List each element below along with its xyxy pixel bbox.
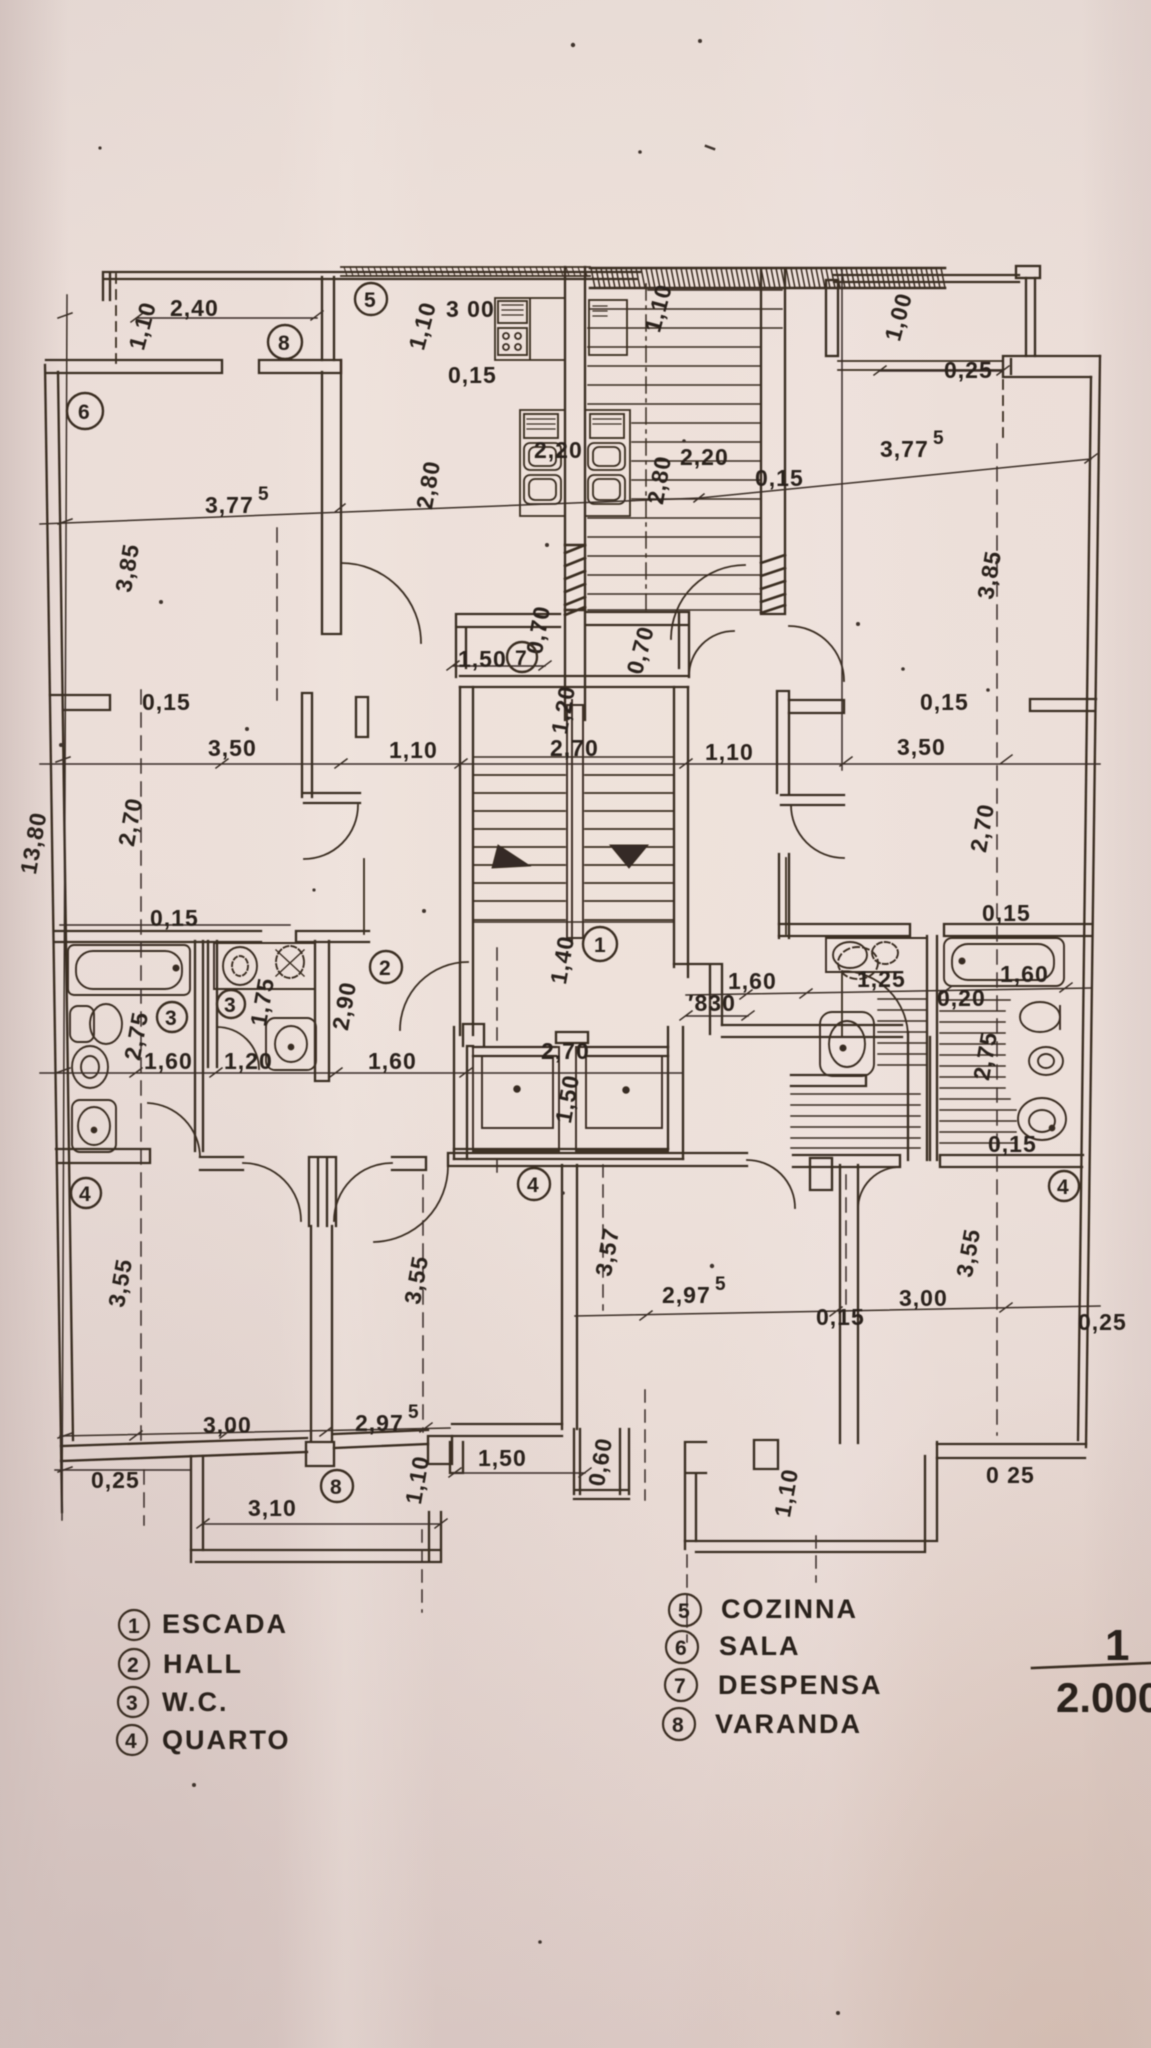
svg-text:0,15: 0,15	[755, 465, 804, 491]
svg-text:1,60: 1,60	[144, 1048, 193, 1074]
svg-text:HALL: HALL	[163, 1649, 243, 1679]
svg-text:0,15: 0,15	[982, 900, 1031, 926]
svg-text:0,25: 0,25	[944, 357, 993, 383]
svg-text:4: 4	[1057, 1176, 1069, 1199]
svg-text:2,20: 2,20	[534, 437, 583, 463]
svg-text:3: 3	[126, 1692, 138, 1715]
svg-text:4: 4	[125, 1730, 137, 1753]
svg-text:2,70: 2,70	[541, 1038, 590, 1064]
svg-text:0,15: 0,15	[920, 689, 969, 715]
svg-text:7: 7	[515, 647, 527, 670]
svg-text:2,20: 2,20	[680, 444, 729, 470]
svg-text:2,97: 2,97	[662, 1282, 711, 1308]
svg-text:1: 1	[128, 1615, 140, 1638]
svg-text:5: 5	[715, 1274, 726, 1295]
svg-text:0,15: 0,15	[816, 1304, 865, 1330]
svg-text:5: 5	[364, 289, 376, 312]
svg-text:W.C.: W.C.	[162, 1687, 229, 1717]
svg-text:5: 5	[258, 484, 269, 505]
svg-text:1,60: 1,60	[728, 968, 777, 994]
svg-text:1: 1	[594, 934, 606, 957]
svg-text:8: 8	[330, 1476, 342, 1499]
svg-text:7: 7	[674, 1675, 686, 1698]
svg-text:1,50: 1,50	[478, 1445, 527, 1471]
svg-text:0,15: 0,15	[448, 362, 497, 388]
svg-text:1: 1	[1105, 1621, 1129, 1670]
svg-text:1,10: 1,10	[389, 737, 438, 763]
svg-text:1,10: 1,10	[705, 739, 754, 765]
svg-text:3: 3	[224, 994, 236, 1017]
svg-text:0,15: 0,15	[988, 1131, 1037, 1157]
svg-text:2.000: 2.000	[1056, 1674, 1151, 1721]
svg-text:1,60: 1,60	[368, 1048, 417, 1074]
svg-text:4: 4	[527, 1174, 539, 1197]
svg-text:3,77: 3,77	[880, 436, 929, 462]
svg-text:5: 5	[678, 1600, 690, 1623]
svg-text:3,50: 3,50	[897, 734, 946, 760]
svg-text:3,50: 3,50	[208, 735, 257, 761]
svg-text:QUARTO: QUARTO	[162, 1725, 291, 1755]
svg-text:4: 4	[79, 1183, 91, 1206]
svg-text:1,20: 1,20	[224, 1048, 273, 1074]
svg-text:1,60: 1,60	[1000, 961, 1049, 987]
svg-text:0,15: 0,15	[142, 689, 191, 715]
svg-text:5: 5	[933, 428, 944, 449]
svg-text:ESCADA: ESCADA	[162, 1609, 288, 1639]
svg-text:3 00: 3 00	[446, 296, 495, 322]
svg-text:SALA: SALA	[719, 1631, 801, 1661]
svg-text:VARANDA: VARANDA	[715, 1709, 862, 1739]
svg-text:3,77: 3,77	[205, 492, 254, 518]
svg-text:2,40: 2,40	[170, 295, 219, 321]
svg-text:2,70: 2,70	[550, 735, 599, 761]
svg-text:3: 3	[165, 1007, 177, 1030]
svg-text:0,25: 0,25	[91, 1467, 140, 1493]
svg-text:2,97: 2,97	[355, 1410, 404, 1436]
svg-text:3,00: 3,00	[203, 1412, 252, 1438]
svg-text:6: 6	[675, 1637, 687, 1660]
svg-text:5: 5	[408, 1402, 419, 1423]
svg-text:6: 6	[78, 401, 90, 424]
svg-text:1,50: 1,50	[458, 646, 507, 672]
svg-text:0,15: 0,15	[150, 905, 199, 931]
svg-text:8: 8	[278, 332, 290, 355]
svg-text:0 25: 0 25	[986, 1462, 1035, 1488]
svg-text:3,00: 3,00	[899, 1285, 948, 1311]
svg-text:DESPENSA: DESPENSA	[718, 1670, 883, 1700]
svg-text:0,25: 0,25	[1078, 1309, 1127, 1335]
svg-text:0,20: 0,20	[937, 985, 986, 1011]
svg-text:2: 2	[379, 957, 391, 980]
svg-text:COZINNA: COZINNA	[721, 1594, 858, 1624]
svg-text:1,25: 1,25	[857, 966, 906, 992]
svg-text:8: 8	[672, 1714, 684, 1737]
svg-text:3,10: 3,10	[248, 1495, 297, 1521]
svg-text:2: 2	[127, 1654, 139, 1677]
